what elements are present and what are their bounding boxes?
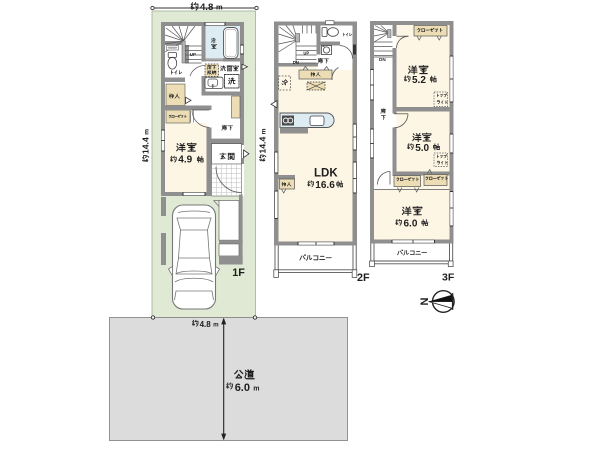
svg-text:UP: UP	[303, 51, 309, 56]
svg-text:m: m	[253, 385, 259, 392]
svg-text:3F: 3F	[442, 272, 455, 284]
svg-text:m: m	[143, 129, 150, 135]
svg-text:4.8: 4.8	[200, 2, 214, 13]
svg-text:4.9: 4.9	[178, 155, 192, 166]
svg-text:DN: DN	[379, 57, 386, 62]
svg-text:N: N	[419, 297, 431, 305]
svg-text:16.6: 16.6	[315, 180, 335, 191]
svg-text:5.2: 5.2	[412, 75, 426, 86]
svg-text:LDK: LDK	[314, 168, 338, 180]
svg-text:6.0: 6.0	[235, 382, 250, 394]
svg-text:14.4: 14.4	[141, 137, 151, 154]
svg-text:1F: 1F	[232, 267, 245, 279]
svg-text:5.0: 5.0	[415, 143, 429, 154]
svg-text:14.4: 14.4	[258, 137, 268, 154]
svg-text:m: m	[213, 321, 219, 328]
svg-text:DN: DN	[293, 60, 299, 65]
svg-text:UP: UP	[190, 52, 196, 57]
svg-text:6.0: 6.0	[404, 219, 418, 230]
svg-text:m: m	[260, 128, 267, 134]
svg-text:4.8: 4.8	[200, 320, 212, 329]
svg-text:m: m	[216, 3, 223, 12]
svg-text:2F: 2F	[357, 272, 370, 284]
